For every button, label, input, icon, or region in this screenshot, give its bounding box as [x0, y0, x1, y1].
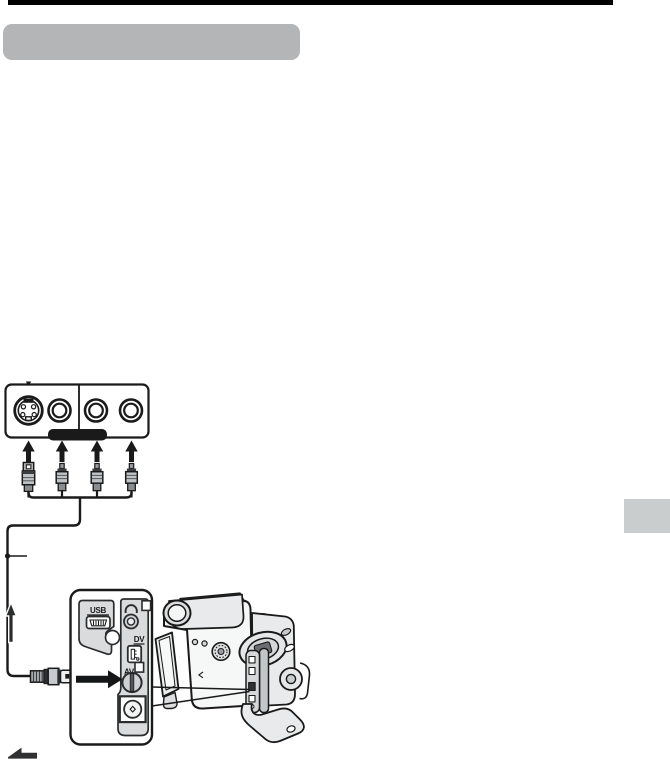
rca-plug: [56, 464, 68, 498]
av-plug: [31, 668, 76, 684]
arrow-up-icon: [91, 441, 103, 463]
camcorder-illustration: [156, 593, 310, 742]
av-connection-diagram: USB: [0, 375, 340, 765]
jack-cover-flap: [241, 704, 303, 742]
audio-left-rca-jack-icon: [85, 400, 107, 422]
mini-usb-port-icon: [87, 617, 111, 629]
top-rule: [8, 0, 613, 5]
terminal-strip-zoom: DV AV: [118, 599, 151, 736]
page-continue-arrow-left-icon: [8, 748, 37, 759]
dc-in-jack-icon: [120, 696, 146, 722]
s-video-jack-icon: [15, 397, 43, 425]
tv-jack-panel: [6, 382, 149, 441]
audio-right-rca-jack-icon: [120, 400, 142, 422]
cover-hinge-tab: [142, 601, 151, 611]
dv-label: DV: [134, 635, 145, 644]
video-rca-jack-icon: [49, 400, 71, 422]
usb-label: USB: [90, 606, 107, 615]
connect-arrows-up: [22, 441, 137, 463]
arrow-up-icon: [125, 441, 137, 463]
arrow-up-icon: [22, 441, 34, 463]
rca-plugs: [56, 464, 137, 498]
section-heading-bar: [3, 24, 300, 60]
arrow-up-icon: [56, 441, 68, 463]
cover-hinge-tab: [135, 663, 144, 673]
av-terminal-on-body: [249, 683, 256, 691]
av-jack-icon: [122, 673, 141, 692]
page-edge-tab: [624, 499, 670, 533]
audio-highlight-bar: [48, 429, 107, 441]
headphone-jack-icon: [124, 615, 138, 629]
terminal-zoom-box: USB: [71, 590, 153, 745]
rca-plug: [91, 464, 103, 498]
dv-port-icon: [128, 646, 141, 663]
manual-page: USB: [0, 0, 670, 765]
